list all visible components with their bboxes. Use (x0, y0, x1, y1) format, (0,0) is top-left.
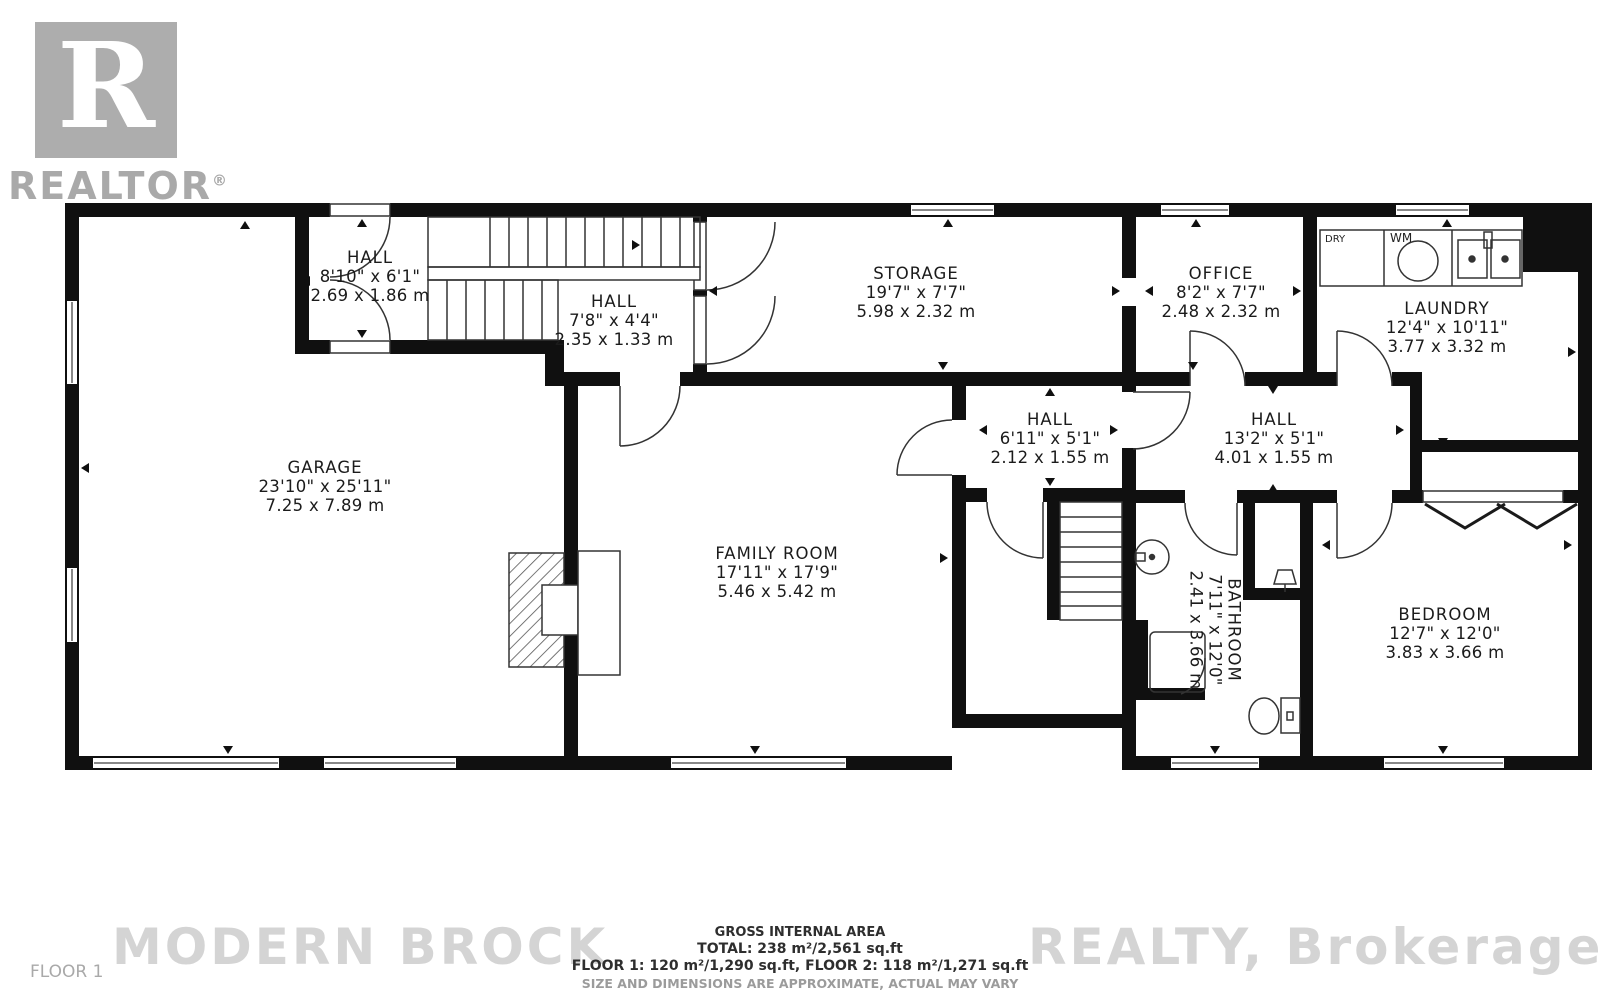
area-summary: GROSS INTERNAL AREA TOTAL: 238 m²/2,561 … (0, 925, 1600, 991)
washer-drum-icon (1398, 241, 1438, 281)
realtor-logo-icon: R (35, 22, 177, 158)
toilet-tank-icon (1281, 698, 1300, 733)
laundry-appliances (1320, 230, 1522, 286)
floor-areas: FLOOR 1: 120 m²/1,290 sq.ft, FLOOR 2: 11… (0, 958, 1600, 974)
floor-plan-page: HALL 8'10" x 6'1" 2.69 x 1.86 m HALL 7'8… (0, 0, 1600, 1008)
disclaimer: SIZE AND DIMENSIONS ARE APPROXIMATE, ACT… (0, 976, 1600, 991)
dryer-label: DRY (1325, 234, 1345, 245)
staircase-basement (1060, 502, 1122, 620)
room-label-hall-entry: HALL 8'10" x 6'1" 2.69 x 1.86 m (311, 248, 430, 305)
total-area: TOTAL: 238 m²/2,561 sq.ft (0, 941, 1600, 957)
room-label-hall-middle: HALL 6'11" x 5'1" 2.12 x 1.55 m (991, 410, 1110, 467)
room-label-hall-upper: HALL 13'2" x 5'1" 4.01 x 1.55 m (1215, 410, 1334, 467)
room-label-bedroom: BEDROOM 12'7" x 12'0" 3.83 x 3.66 m (1386, 605, 1505, 662)
room-label-garage: GARAGE 23'10" x 25'11" 7.25 x 7.89 m (259, 458, 392, 515)
room-label-storage: STORAGE 19'7" x 7'7" 5.98 x 2.32 m (857, 264, 976, 321)
washer-label: WM (1390, 231, 1412, 245)
realtor-wordmark: REALTOR® (8, 164, 229, 208)
closet-chevrons (1425, 504, 1577, 528)
room-label-hall-stairs: HALL 7'8" x 4'4" 2.35 x 1.33 m (555, 292, 674, 349)
room-label-family-room: FAMILY ROOM 17'11" x 17'9" 5.46 x 5.42 m (715, 544, 838, 601)
floor-plan-drawing (0, 0, 1600, 1008)
room-label-office: OFFICE 8'2" x 7'7" 2.48 x 2.32 m (1162, 264, 1281, 321)
room-label-bathroom: BATHROOM 7'11" x 12'0" 2.41 x 3.66 m (1187, 571, 1244, 690)
shower-icon (1274, 570, 1296, 584)
toilet-bowl-icon (1249, 698, 1279, 734)
gross-internal-area-title: GROSS INTERNAL AREA (0, 925, 1600, 940)
floor-number-label: FLOOR 1 (30, 962, 103, 982)
fireplace (509, 551, 620, 675)
room-label-laundry: LAUNDRY 12'4" x 10'11" 3.77 x 3.32 m (1386, 299, 1508, 356)
